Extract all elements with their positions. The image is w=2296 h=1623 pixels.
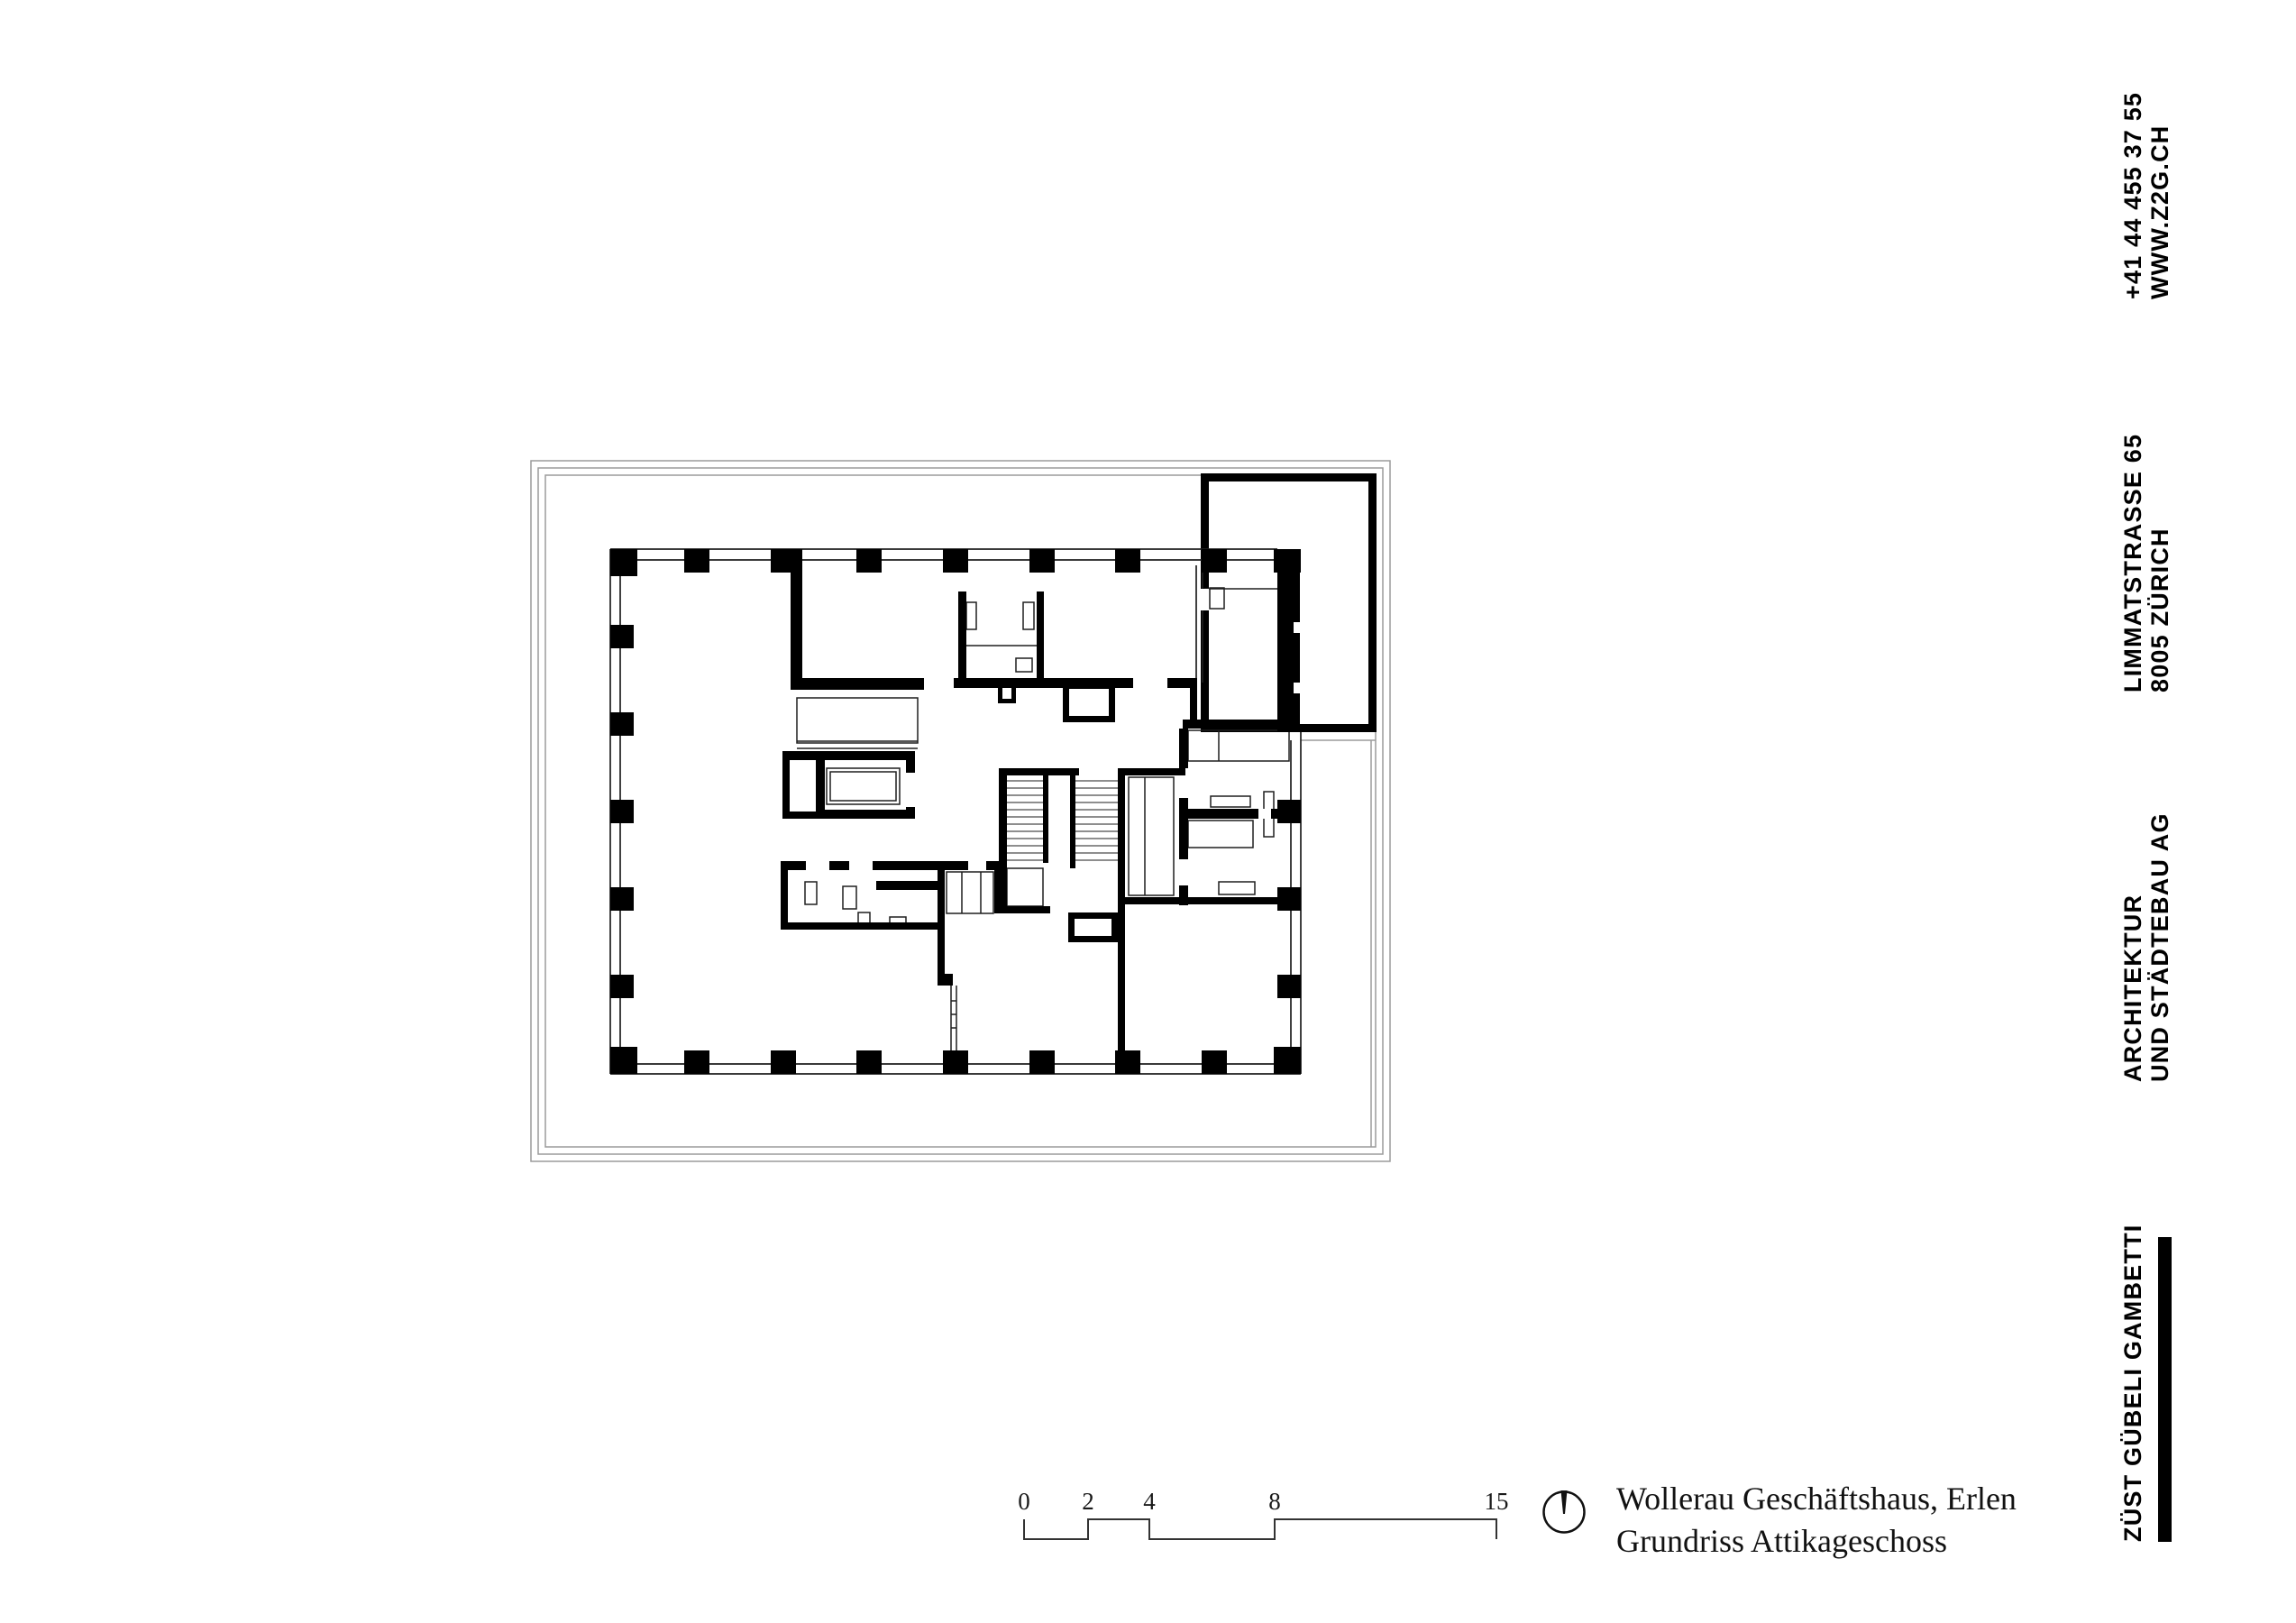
storage-room	[947, 872, 993, 913]
staircase	[1007, 781, 1118, 860]
wc-fixture	[805, 882, 817, 904]
title-block: Wollerau Geschäftshaus, Erlen Grundriss …	[1616, 1478, 2017, 1563]
firm-name: ZÜST GÜBELI GAMBETTI	[2119, 1231, 2146, 1542]
bathtub	[827, 768, 900, 804]
scale-label-0: 0	[1018, 1488, 1030, 1515]
brand-bar	[2158, 1237, 2172, 1542]
project-title: Wollerau Geschäftshaus, Erlen	[1616, 1478, 2017, 1520]
bench	[1211, 796, 1250, 807]
scale-label-8: 8	[1268, 1488, 1281, 1515]
north-arrow-icon	[1544, 1490, 1585, 1533]
bed	[1188, 730, 1289, 761]
bed	[1188, 821, 1253, 848]
firm-block: ARCHITEKTUR UND STÄDTEBAU AG	[2119, 595, 2173, 1082]
drawing-sheet: 0 2 4 8 15 Wollerau Geschäftshaus, Erlen…	[0, 0, 2296, 1623]
scale-bar: 0 2 4 8 15	[1018, 1488, 1508, 1539]
closet-shelf	[797, 698, 918, 743]
scale-label-2: 2	[1082, 1488, 1094, 1515]
sink-fixture	[1016, 658, 1032, 672]
wc-fixture	[966, 602, 976, 629]
bench	[1219, 882, 1255, 894]
firm-descriptor-2: UND STÄDTEBAU AG	[2146, 595, 2173, 1082]
scale-label-4: 4	[1143, 1488, 1156, 1515]
brand-block: ZÜST GÜBELI GAMBETTI	[2119, 1231, 2172, 1542]
service-shafts	[1001, 686, 1115, 940]
elevator-car	[1129, 777, 1174, 895]
scale-label-15: 15	[1485, 1488, 1509, 1515]
wc-fixture	[843, 886, 856, 909]
drawing-title: Grundriss Attikageschoss	[1616, 1520, 2017, 1563]
understair-room	[1007, 868, 1043, 906]
wc-fixture	[1023, 602, 1034, 629]
firm-descriptor-1: ARCHITEKTUR	[2119, 595, 2146, 1082]
floor-plan-attic: 0 2 4 8 15	[0, 0, 2296, 1623]
